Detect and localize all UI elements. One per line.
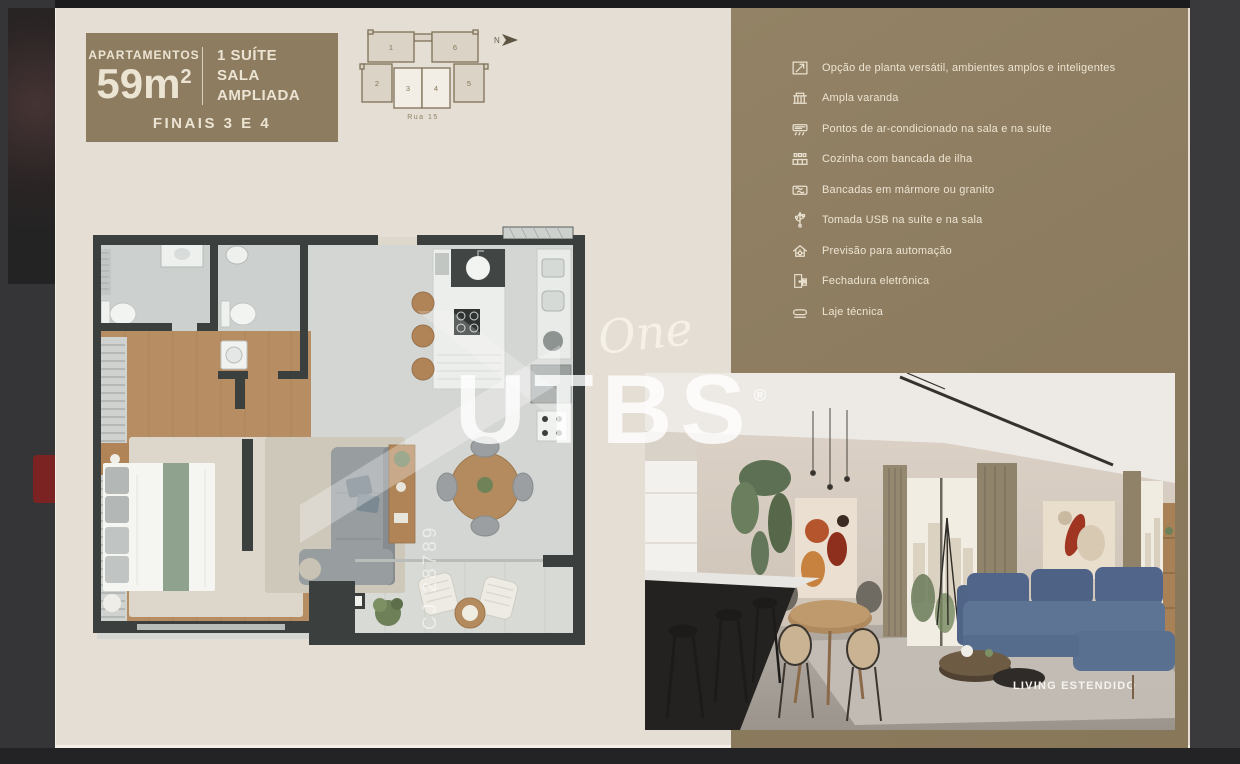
home-automation-icon <box>791 242 809 260</box>
badge-type-block: 1 SUÍTE SALA AMPLIADA <box>203 46 338 107</box>
wall-counter <box>537 249 571 359</box>
unit-label-4: 4 <box>434 84 438 93</box>
badge-area-block: APARTAMENTOS 59m2 <box>86 48 202 105</box>
gallery-thumbnail[interactable] <box>8 8 55 284</box>
pouf <box>103 594 121 612</box>
right-gutter <box>1190 0 1240 764</box>
feature-label: Fechadura eletrônica <box>822 275 929 287</box>
apartment-badge: APARTAMENTOS 59m2 1 SUÍTE SALA AMPLIADA … <box>86 33 338 142</box>
feature-item: Tomada USB na suíte e na sala <box>791 211 1115 230</box>
area-exponent: 2 <box>180 66 191 88</box>
feature-label: Tomada USB na suíte e na sala <box>822 214 983 226</box>
service-recess <box>503 227 573 239</box>
floor-plan-arrow-icon <box>791 59 809 77</box>
north-label: N <box>494 36 500 45</box>
photo-caption: LIVING ESTENDIDO <box>1013 680 1136 692</box>
key-plan-units <box>360 30 488 108</box>
north-arrow-icon: N <box>494 34 518 46</box>
feature-item: Bancadas em mármore ou granito <box>791 180 1115 199</box>
unit-label-6: 6 <box>453 43 457 52</box>
finals-line: FINAIS 3 E 4 <box>86 115 338 132</box>
feature-label: Pontos de ar-condicionado na sala e na s… <box>822 123 1052 135</box>
red-logo-badge <box>33 455 55 503</box>
unit-label-1: 1 <box>389 43 393 52</box>
unit-label-3: 3 <box>406 84 410 93</box>
area-value: 59m2 <box>86 63 202 105</box>
suite-line: 1 SUÍTE <box>217 46 338 66</box>
sliding-door-line <box>355 559 543 562</box>
caption-divider-bar <box>1132 675 1134 699</box>
feature-label: Bancadas em mármore ou granito <box>822 184 994 196</box>
cabinet-soffit <box>645 433 697 461</box>
feature-label: Previsão para automação <box>822 245 952 257</box>
feature-label: Cozinha com bancada de ilha <box>822 153 972 165</box>
living-room-render <box>645 373 1175 730</box>
entry-threshold <box>378 237 417 245</box>
feature-item: Opção de planta versátil, ambientes ampl… <box>791 58 1115 77</box>
feature-label: Laje técnica <box>822 306 883 318</box>
balcony-icon <box>791 89 809 107</box>
feature-item: Fechadura eletrônica <box>791 272 1115 291</box>
electronic-lock-icon <box>791 272 809 290</box>
floor-plan <box>85 225 595 655</box>
feature-item: Previsão para automação <box>791 241 1115 260</box>
street-label: Rua 15 <box>407 114 439 121</box>
kitchen-island-icon <box>791 150 809 168</box>
stool <box>412 292 434 314</box>
toilet <box>221 301 256 327</box>
feature-label: Ampla varanda <box>822 92 899 104</box>
features-list: Opção de planta versátil, ambientes ampl… <box>791 58 1115 333</box>
area-number: 59m <box>96 60 180 107</box>
feature-item: Pontos de ar-condicionado na sala e na s… <box>791 119 1115 138</box>
feature-item: Cozinha com bancada de ilha <box>791 150 1115 169</box>
unit-label-5: 5 <box>467 79 471 88</box>
sala-line: SALA AMPLIADA <box>217 66 338 107</box>
feature-item: Ampla varanda <box>791 89 1115 108</box>
side-table <box>299 558 321 580</box>
bedroom-window <box>137 624 285 630</box>
unit-label-2: 2 <box>375 79 379 88</box>
stool <box>412 358 434 380</box>
gallery-sidebar <box>0 0 55 764</box>
bottom-gutter <box>0 748 1240 764</box>
building-key-plan: 1 2 3 4 5 6 Rua 15 N <box>356 26 521 121</box>
brochure-page: APARTAMENTOS 59m2 1 SUÍTE SALA AMPLIADA … <box>0 0 1240 764</box>
usb-icon <box>791 211 809 229</box>
marble-countertop-icon <box>791 181 809 199</box>
feature-item: Laje técnica <box>791 302 1115 321</box>
badge-top-row: APARTAMENTOS 59m2 1 SUÍTE SALA AMPLIADA <box>86 33 338 111</box>
stool <box>412 325 434 347</box>
bed <box>103 463 215 591</box>
feature-label: Opção de planta versátil, ambientes ampl… <box>822 62 1115 74</box>
technical-slab-icon <box>791 303 809 321</box>
washer <box>221 341 247 369</box>
living-room-photo: LIVING ESTENDIDO <box>645 373 1175 730</box>
air-conditioner-icon <box>791 120 809 138</box>
